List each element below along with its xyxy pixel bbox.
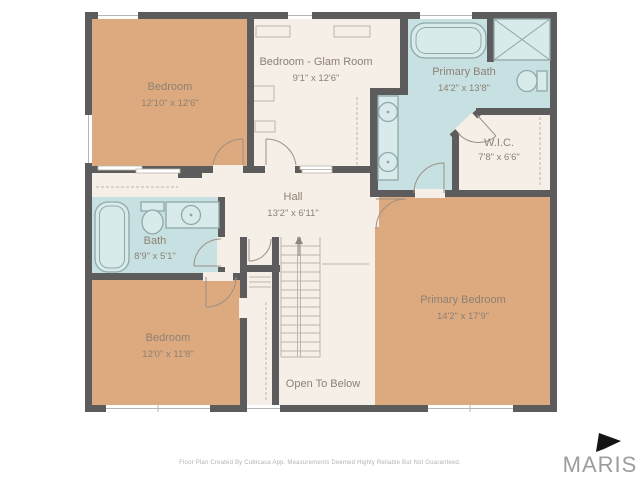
wall-closet-divider <box>240 265 280 272</box>
dims-bath: 8'9" x 5'1" <box>134 251 176 262</box>
wall-glam-bath <box>400 12 408 95</box>
dims-wic: 7'8" x 6'6" <box>478 152 520 163</box>
double-vanity-fixture <box>378 96 398 180</box>
maris-logo-text: MARIS <box>563 452 638 477</box>
window <box>288 12 312 19</box>
label-open-to-below: Open To Below <box>286 378 360 390</box>
dims-hall: 13'2" x 6'11" <box>267 208 318 219</box>
footer-disclaimer: Floor Plan Created By Cubicasa App. Meas… <box>179 460 461 466</box>
label-wic: W.I.C. <box>484 137 514 149</box>
window <box>428 405 513 412</box>
wall-closet-stub <box>178 166 202 178</box>
window <box>85 115 92 163</box>
window <box>98 12 138 19</box>
dims-primary-bath: 14'2" x 13'8" <box>438 83 490 94</box>
wall-bedroom-glam <box>247 12 254 172</box>
sliding-closet-door <box>98 166 142 170</box>
label-primary-bath: Primary Bath <box>432 66 496 78</box>
dims-bedroom-top-left: 12'10" x 12'6" <box>141 98 198 109</box>
label-hall: Hall <box>284 191 303 203</box>
toilet-fixture <box>141 202 164 234</box>
wall-primary-bedroom-top <box>370 190 552 197</box>
room-bedroom-top-left <box>92 19 247 171</box>
wall-shower <box>487 12 494 62</box>
maris-flag-icon <box>596 433 621 452</box>
shower-fixture <box>494 19 550 60</box>
sliding-closet-door <box>302 170 332 174</box>
sink-fixture <box>166 202 219 228</box>
label-glam-room: Bedroom - Glam Room <box>259 56 372 68</box>
bathtub-fixture <box>95 202 129 272</box>
label-bedroom-top-left: Bedroom <box>148 81 193 93</box>
sliding-closet-door <box>300 166 332 170</box>
wall-hall-bath <box>370 88 378 197</box>
wall-stairs-left <box>272 237 279 412</box>
label-primary-bedroom: Primary Bedroom <box>420 294 506 306</box>
wall-bedroom-bl-right <box>240 237 247 412</box>
toilet-fixture <box>517 71 547 92</box>
window <box>247 405 280 412</box>
floor-plan-svg: Bedroom 12'10" x 12'6" Bedroom - Glam Ro… <box>0 0 640 480</box>
label-bath: Bath <box>144 235 167 247</box>
window <box>420 12 472 19</box>
floor-plan-canvas: Bedroom 12'10" x 12'6" Bedroom - Glam Ro… <box>0 0 640 480</box>
maris-logo: MARIS <box>563 433 638 477</box>
wall-wic-top <box>476 108 550 115</box>
dims-primary-bedroom: 14'2" x 17'9" <box>437 311 489 322</box>
window <box>106 405 210 412</box>
label-bedroom-bottom-left: Bedroom <box>146 332 191 344</box>
sliding-closet-door <box>136 169 180 173</box>
wall-wic-left <box>452 133 459 192</box>
dims-glam-room: 9'1" x 12'6" <box>293 73 340 84</box>
dims-bedroom-bottom-left: 12'0" x 11'8" <box>142 349 193 360</box>
